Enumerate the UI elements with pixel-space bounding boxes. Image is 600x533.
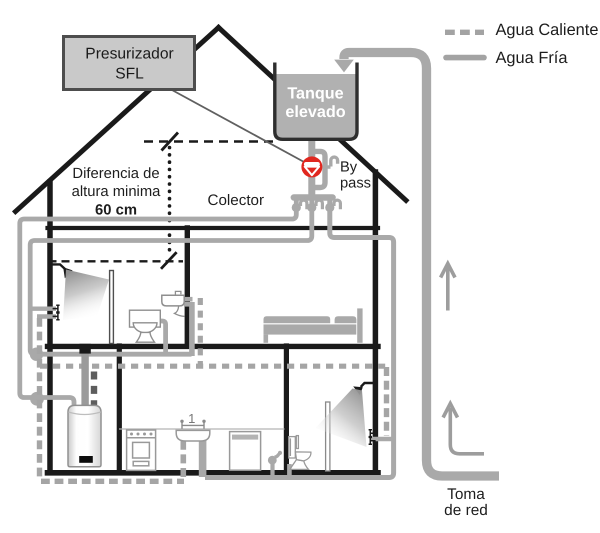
svg-text:pass: pass <box>340 176 371 192</box>
svg-text:Diferencia de: Diferencia de <box>72 166 159 182</box>
svg-text:Agua Caliente: Agua Caliente <box>496 21 599 39</box>
svg-text:Tanque: Tanque <box>287 84 343 102</box>
svg-text:Colector: Colector <box>208 192 265 209</box>
svg-text:Agua Fría: Agua Fría <box>496 49 569 67</box>
svg-text:elevado: elevado <box>285 103 345 121</box>
svg-text:Presurizador: Presurizador <box>85 46 173 63</box>
svg-text:By: By <box>340 160 358 176</box>
svg-text:SFL: SFL <box>115 66 144 83</box>
svg-text:Toma: Toma <box>447 486 485 503</box>
svg-text:60 cm: 60 cm <box>95 203 137 219</box>
svg-text:de red: de red <box>444 502 488 519</box>
svg-text:1: 1 <box>188 411 195 426</box>
svg-text:altura minima: altura minima <box>72 184 162 200</box>
